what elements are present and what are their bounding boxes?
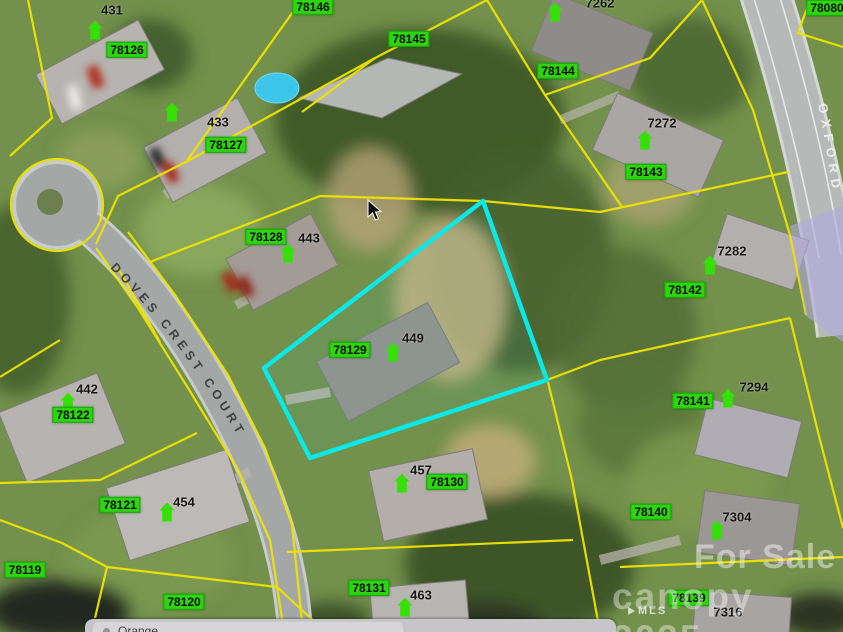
house-number-457: 457	[410, 463, 432, 478]
house-number-449: 449	[402, 331, 424, 346]
house-number-433: 433	[207, 115, 229, 130]
parcel-label-78119[interactable]: 78119	[5, 562, 46, 578]
parcel-label-78146[interactable]: 78146	[292, 0, 333, 15]
map-viewport[interactable]: DOVES CREST COURT OXFORD 781267814678145…	[0, 0, 843, 632]
parcel-label-78126[interactable]: 78126	[106, 42, 147, 58]
parcel-label-78130[interactable]: 78130	[426, 474, 467, 490]
map-annotations: 7812678146781457814478080781277814378128…	[0, 0, 843, 632]
parcel-label-78144[interactable]: 78144	[537, 63, 578, 79]
parcel-label-78145[interactable]: 78145	[388, 31, 429, 47]
parcel-marker-icon[interactable]	[165, 103, 180, 122]
parcel-marker-icon[interactable]	[721, 389, 736, 408]
parcel-label-78080[interactable]: 78080	[806, 0, 843, 16]
parcel-label-78142[interactable]: 78142	[664, 282, 705, 298]
house-number-443: 443	[298, 231, 320, 246]
house-number-7294: 7294	[740, 380, 769, 395]
county-list-item[interactable]: Orange	[93, 622, 403, 632]
house-number-7262: 7262	[586, 0, 615, 11]
bottom-sheet-panel[interactable]: Orange	[85, 619, 616, 632]
house-number-7272: 7272	[648, 116, 677, 131]
parcel-marker-icon[interactable]	[88, 21, 103, 40]
parcel-label-78139[interactable]: 78139	[668, 590, 709, 606]
county-label: Orange	[118, 624, 158, 632]
parcel-label-78140[interactable]: 78140	[630, 504, 671, 520]
parcel-marker-icon[interactable]	[638, 131, 653, 150]
parcel-marker-icon[interactable]	[703, 256, 718, 275]
house-number-7304: 7304	[723, 510, 752, 525]
parcel-marker-icon[interactable]	[548, 3, 563, 22]
parcel-label-78122[interactable]: 78122	[52, 407, 93, 423]
parcel-label-78143[interactable]: 78143	[625, 164, 666, 180]
parcel-marker-icon[interactable]	[281, 244, 296, 263]
parcel-label-78129[interactable]: 78129	[329, 342, 370, 358]
house-number-7316: 7316	[714, 605, 743, 620]
house-number-454: 454	[173, 495, 195, 510]
parcel-label-78131[interactable]: 78131	[348, 580, 389, 596]
parcel-label-78127[interactable]: 78127	[205, 137, 246, 153]
parcel-label-78121[interactable]: 78121	[99, 497, 140, 513]
bullet-icon	[103, 628, 110, 632]
parcel-label-78141[interactable]: 78141	[672, 393, 713, 409]
house-number-442: 442	[76, 382, 98, 397]
house-number-431: 431	[101, 3, 123, 18]
house-number-7282: 7282	[718, 244, 747, 259]
parcel-marker-icon[interactable]	[395, 474, 410, 493]
house-number-463: 463	[410, 588, 432, 603]
parcel-label-78120[interactable]: 78120	[163, 594, 204, 610]
parcel-marker-icon[interactable]	[386, 343, 401, 362]
parcel-label-78128[interactable]: 78128	[245, 229, 286, 245]
